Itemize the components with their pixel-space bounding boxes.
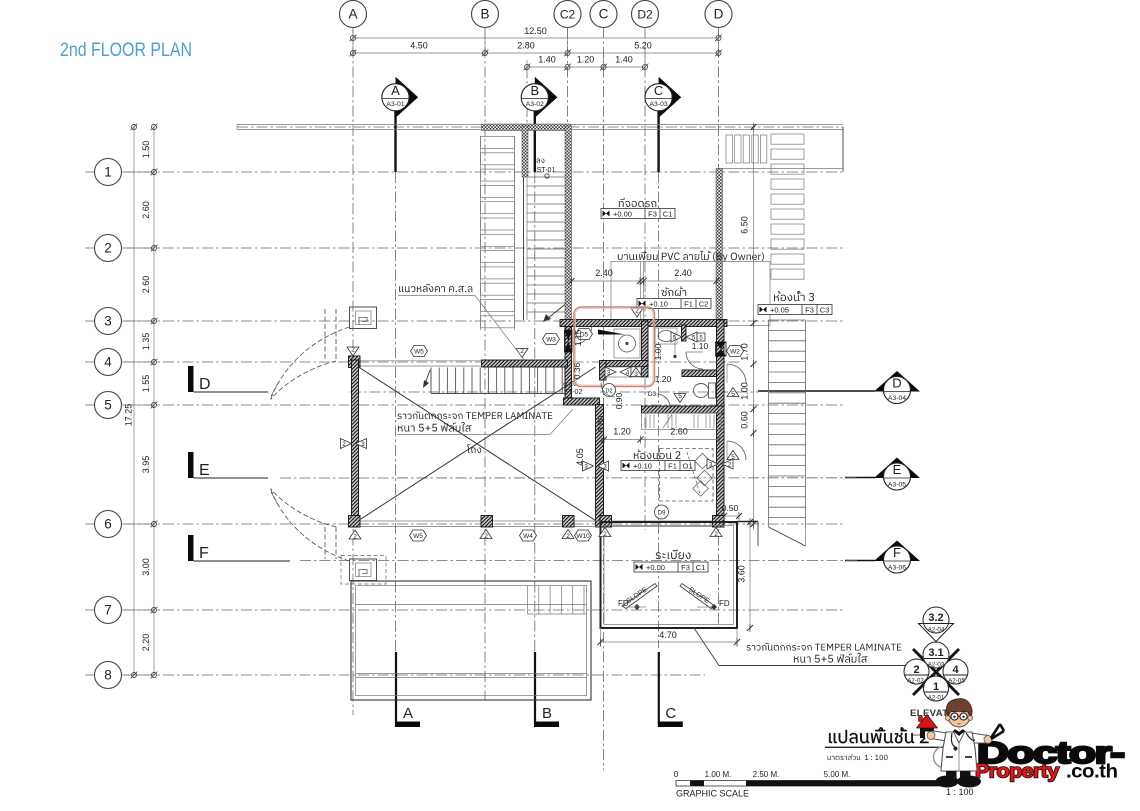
svg-text:2.40: 2.40 — [595, 268, 613, 278]
svg-text:D2: D2 — [605, 389, 612, 395]
svg-text:C2: C2 — [699, 300, 709, 309]
svg-text:A2-02: A2-02 — [907, 678, 924, 685]
svg-text:A2-03: A2-03 — [928, 662, 945, 669]
svg-text:1.40: 1.40 — [615, 55, 633, 65]
svg-text:5.20: 5.20 — [634, 41, 652, 51]
svg-text:8: 8 — [104, 668, 112, 683]
svg-text:1.50: 1.50 — [141, 141, 151, 159]
svg-text:D: D — [892, 376, 901, 391]
svg-text:0: 0 — [674, 770, 679, 779]
svg-text:A3-03: A3-03 — [650, 101, 668, 108]
svg-text:1: 1 — [104, 165, 112, 180]
svg-text:ST-01: ST-01 — [537, 167, 556, 174]
svg-text:3.2: 3.2 — [928, 612, 943, 624]
svg-text:D: D — [714, 7, 724, 22]
svg-text:5: 5 — [678, 393, 682, 400]
svg-text:3: 3 — [104, 314, 112, 329]
svg-text:2.50 M.: 2.50 M. — [753, 770, 780, 779]
svg-text:ST-02: ST-02 — [564, 389, 583, 396]
svg-text:2: 2 — [351, 346, 355, 353]
svg-text:F3: F3 — [648, 210, 657, 219]
svg-text:D9: D9 — [658, 511, 666, 517]
svg-text:2: 2 — [520, 348, 524, 355]
svg-text:1.55: 1.55 — [141, 375, 151, 393]
svg-text:0.50: 0.50 — [722, 503, 739, 513]
svg-text:1.35: 1.35 — [141, 333, 151, 351]
svg-text:4.70: 4.70 — [659, 630, 677, 640]
svg-text:0.90: 0.90 — [614, 392, 624, 409]
svg-text:A3-04: A3-04 — [888, 395, 906, 402]
svg-text:A2-04: A2-04 — [928, 627, 945, 634]
svg-text:6: 6 — [104, 517, 112, 532]
svg-text:2nd FLOOR PLAN: 2nd FLOOR PLAN — [60, 39, 192, 61]
svg-text:1 : 100: 1 : 100 — [946, 787, 974, 797]
svg-text:C2: C2 — [560, 8, 576, 22]
svg-text:C1: C1 — [696, 563, 706, 572]
svg-text:3.95: 3.95 — [141, 456, 151, 474]
svg-text:FD: FD — [719, 599, 730, 608]
svg-text:3.00: 3.00 — [141, 558, 151, 576]
svg-text:F3: F3 — [805, 306, 814, 315]
svg-text:17.25: 17.25 — [124, 404, 134, 427]
svg-text:2: 2 — [603, 531, 607, 538]
svg-text:C3: C3 — [820, 306, 830, 315]
svg-text:2.80: 2.80 — [517, 41, 535, 51]
svg-text:D3: D3 — [648, 391, 657, 398]
svg-text:F: F — [893, 545, 901, 560]
svg-text:1.40: 1.40 — [538, 55, 556, 65]
svg-text:D2: D2 — [637, 8, 653, 22]
svg-text:.co.th: .co.th — [1066, 761, 1117, 782]
svg-text:F3: F3 — [681, 563, 690, 572]
svg-text:0.80: 0.80 — [596, 415, 606, 432]
svg-text:FD: FD — [618, 599, 629, 608]
svg-text:1.20: 1.20 — [655, 374, 672, 384]
svg-text:2.20: 2.20 — [141, 634, 151, 652]
svg-text:C: C — [654, 83, 663, 98]
svg-text:2: 2 — [484, 533, 488, 540]
svg-text:6.50: 6.50 — [740, 216, 750, 234]
svg-text:W5: W5 — [413, 533, 423, 540]
svg-text:5.00 M.: 5.00 M. — [824, 770, 851, 779]
svg-text:0.60: 0.60 — [740, 411, 750, 429]
svg-text:+0.00: +0.00 — [646, 563, 665, 572]
svg-text:W10: W10 — [576, 533, 590, 540]
svg-text:D: D — [199, 376, 211, 393]
svg-text:1.20: 1.20 — [577, 55, 595, 65]
svg-text:A3-05: A3-05 — [888, 482, 906, 489]
svg-text:12.50: 12.50 — [524, 26, 547, 36]
svg-text:A3-06: A3-06 — [888, 565, 906, 572]
svg-text:3.60: 3.60 — [737, 565, 747, 583]
svg-text:A: A — [391, 83, 400, 98]
svg-text:1.15: 1.15 — [573, 329, 583, 346]
svg-text:B: B — [480, 7, 489, 22]
svg-text:W2: W2 — [730, 348, 740, 355]
svg-text:E: E — [893, 462, 902, 477]
svg-text:2: 2 — [566, 533, 570, 540]
svg-text:A: A — [348, 7, 357, 22]
svg-text:1.10: 1.10 — [692, 341, 709, 351]
svg-text:F1: F1 — [668, 462, 677, 471]
svg-text:+0.10: +0.10 — [649, 300, 668, 309]
svg-text:C: C — [665, 705, 676, 722]
svg-text:Property: Property — [975, 762, 1060, 783]
svg-text:5: 5 — [731, 391, 735, 398]
svg-text:2.40: 2.40 — [674, 268, 692, 278]
svg-text:2: 2 — [104, 241, 112, 256]
svg-text:A3-02: A3-02 — [526, 101, 544, 108]
svg-text:2: 2 — [714, 531, 718, 538]
svg-text:1.00: 1.00 — [740, 382, 750, 400]
svg-text:1.00: 1.00 — [653, 343, 663, 360]
svg-text:2.60: 2.60 — [141, 276, 151, 294]
svg-text:2.60: 2.60 — [141, 201, 151, 219]
svg-text:B: B — [542, 705, 552, 722]
svg-text:5: 5 — [104, 398, 112, 413]
svg-text:+0.10: +0.10 — [633, 462, 652, 471]
svg-text:F1: F1 — [684, 300, 693, 309]
svg-text:+0.05: +0.05 — [770, 306, 789, 315]
svg-text:C1: C1 — [663, 210, 673, 219]
svg-text:F: F — [199, 545, 209, 562]
svg-text:1: 1 — [933, 681, 939, 693]
svg-text:4.50: 4.50 — [410, 41, 428, 51]
svg-text:1.00 M.: 1.00 M. — [705, 770, 732, 779]
svg-text:W4: W4 — [523, 533, 533, 540]
svg-text:0.36: 0.36 — [572, 362, 582, 379]
svg-text:E: E — [199, 462, 210, 479]
svg-text:A2-05: A2-05 — [948, 678, 965, 685]
svg-text:B: B — [530, 83, 539, 98]
svg-text:W5: W5 — [414, 348, 424, 355]
svg-text:2: 2 — [913, 664, 919, 676]
svg-text:A3-01: A3-01 — [386, 101, 404, 108]
svg-text:7: 7 — [104, 603, 112, 618]
svg-text:+0.00: +0.00 — [613, 210, 632, 219]
svg-text:2.60: 2.60 — [670, 427, 688, 437]
svg-text:O1: O1 — [682, 462, 692, 471]
svg-text:3.1: 3.1 — [928, 647, 943, 659]
svg-text:2: 2 — [353, 533, 357, 540]
svg-text:4: 4 — [952, 664, 959, 676]
svg-text:A: A — [403, 705, 413, 722]
svg-text:1.20: 1.20 — [613, 427, 631, 437]
svg-text:C: C — [599, 7, 609, 22]
svg-text:4: 4 — [104, 355, 112, 370]
svg-text:A2-01: A2-01 — [928, 695, 945, 702]
svg-text:W3: W3 — [546, 336, 556, 343]
svg-text:3: 3 — [634, 371, 638, 378]
svg-text:GRAPHIC SCALE: GRAPHIC SCALE — [676, 789, 749, 799]
